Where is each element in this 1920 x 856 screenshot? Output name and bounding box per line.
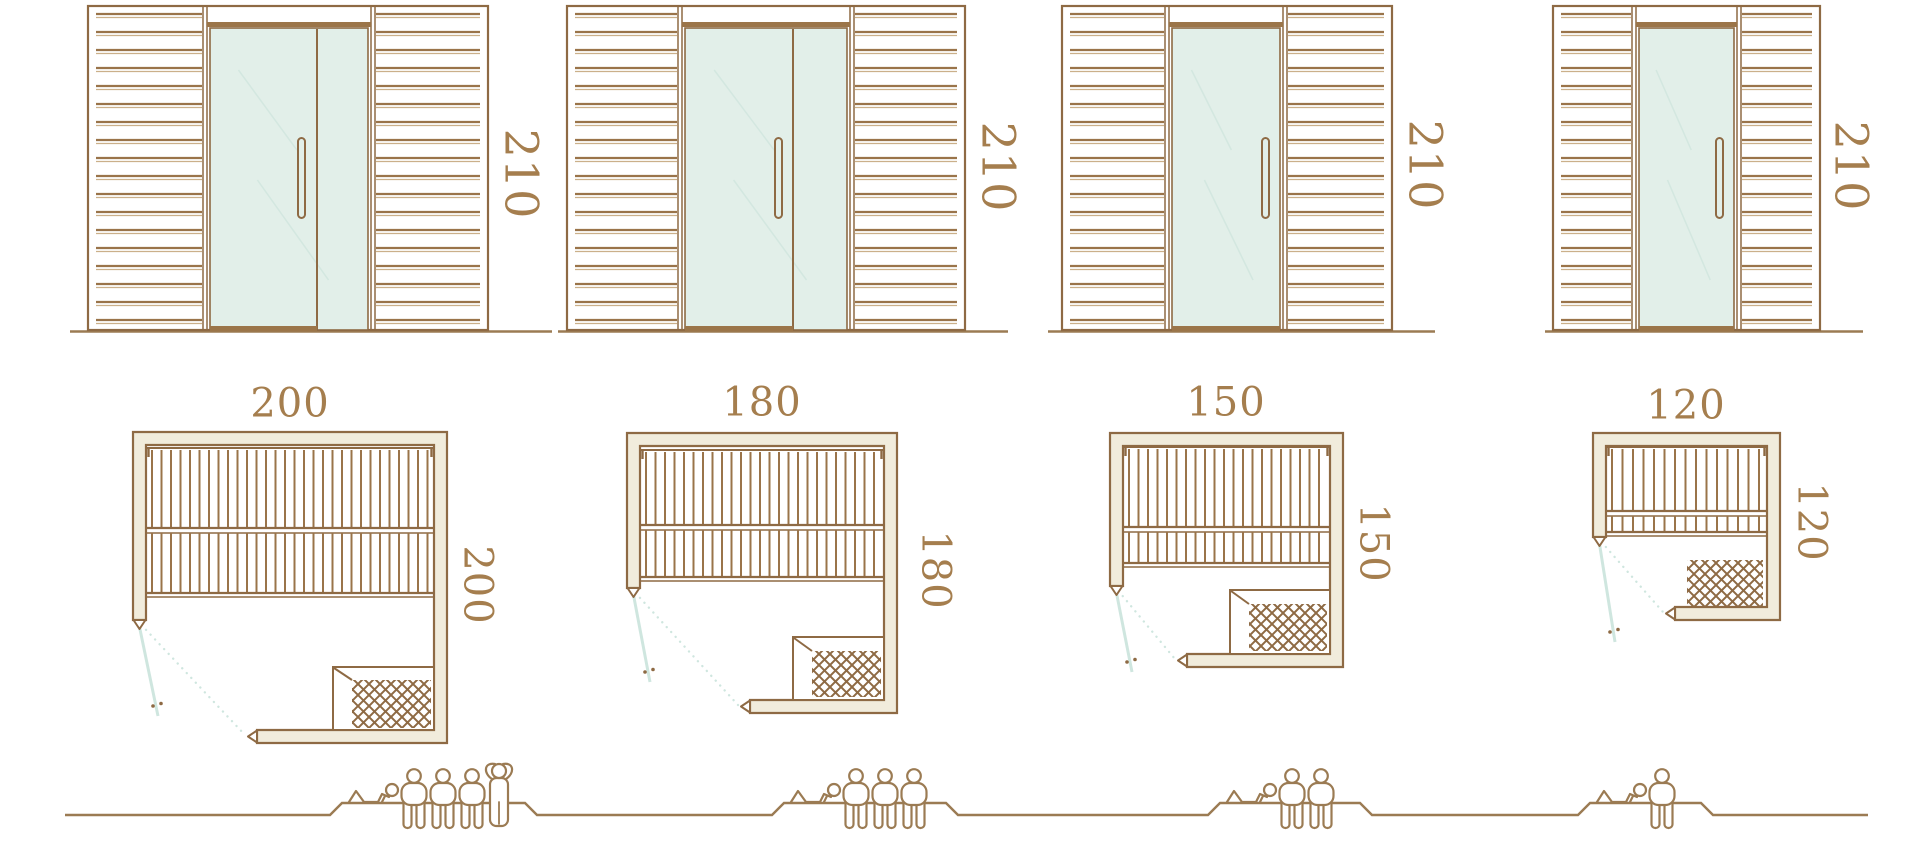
height-dimension-label: 210: [494, 129, 548, 220]
wood-slat-panel: [96, 14, 202, 324]
elevation-front-view: [1048, 6, 1435, 332]
elevation-front-view: [70, 6, 552, 332]
door-header-bar: [682, 22, 850, 27]
unit-sauna-120: 210120120: [1545, 6, 1878, 642]
door-hinge-marker: [1111, 586, 1123, 595]
wood-slat-panel: [575, 14, 677, 324]
door-sill: [1172, 326, 1280, 332]
door-jamb-marker: [1178, 655, 1187, 667]
door-leaf-open: [1600, 544, 1616, 642]
wood-slat-panel: [855, 14, 957, 324]
door-jamb-marker: [248, 731, 257, 743]
door-handle: [298, 138, 305, 218]
door-handle-dot: [1616, 628, 1620, 632]
wood-slat-panel: [1742, 14, 1812, 324]
person-seated-icon: [873, 769, 898, 828]
capacity-icons-200: [349, 764, 512, 828]
diagram-svg: 210200200210180180210150150210120120: [0, 0, 1920, 856]
door-handle-dot: [1608, 630, 1612, 634]
capacity-icons-120: [1597, 769, 1675, 828]
person-seated-icon: [402, 769, 427, 828]
door-swing-arc: [636, 593, 739, 705]
door-handle-dot: [643, 670, 647, 674]
person-seated-icon: [460, 769, 485, 828]
floor-plan-top-view: [1110, 433, 1370, 672]
door-handle-dot: [151, 704, 155, 708]
door-handle-dot: [651, 668, 655, 672]
capacity-icons-180: [791, 769, 927, 828]
unit-sauna-200: 210200200: [70, 6, 552, 743]
glass-door-swing: [1117, 591, 1176, 672]
glass-door-panel: [210, 28, 368, 330]
glass-door-swing: [140, 625, 246, 735]
door-hinge-marker: [1594, 537, 1606, 546]
floor-plan-top-view: [627, 433, 922, 713]
heater: [1635, 559, 1808, 609]
depth-dimension-label: 120: [1788, 482, 1834, 561]
heater: [298, 667, 484, 731]
bench-slats: [1124, 447, 1329, 567]
depth-dimension-label: 200: [454, 545, 500, 624]
door-jamb-marker: [1666, 608, 1675, 620]
door-handle: [1716, 138, 1723, 218]
person-lying-icon: [1227, 784, 1276, 802]
person-seated-icon: [1650, 769, 1675, 828]
door-swing-arc: [142, 625, 246, 735]
person-lying-icon: [791, 784, 840, 802]
door-leaf-open: [1117, 593, 1133, 672]
person-seated-icon: [1280, 769, 1305, 828]
floor-plan-top-view: [133, 432, 484, 743]
glass-door-panel: [685, 28, 847, 330]
depth-dimension-label: 150: [1350, 503, 1396, 582]
door-handle-dot: [159, 702, 163, 706]
bench-slats: [641, 450, 883, 581]
person-seated-icon: [1309, 769, 1334, 828]
person-seated-icon: [844, 769, 869, 828]
elevation-front-view: [1545, 6, 1863, 332]
door-sill: [685, 326, 793, 332]
unit-sauna-180: 210180180: [558, 6, 1025, 713]
door-header-bar: [207, 22, 371, 27]
door-header-bar: [1636, 22, 1737, 27]
width-dimension-label: 150: [1186, 380, 1265, 426]
height-dimension-label: 210: [1398, 120, 1452, 211]
width-dimension-label: 180: [722, 380, 801, 426]
depth-dimension-label: 180: [912, 530, 958, 609]
door-hinge-marker: [628, 588, 640, 597]
person-lying-icon: [1597, 784, 1646, 802]
person-seated-icon: [431, 769, 456, 828]
door-leaf-open: [634, 595, 651, 682]
door-handle-dot: [1133, 658, 1137, 662]
door-swing-arc: [1602, 542, 1664, 612]
ground-profile-line: [65, 803, 1868, 815]
door-hinge-marker: [134, 620, 146, 629]
door-handle: [1262, 138, 1269, 218]
door-sill: [210, 326, 317, 332]
capacity-icons-150: [1227, 769, 1334, 828]
elevation-front-view: [558, 6, 1008, 332]
door-handle: [775, 138, 782, 218]
wood-slat-panel: [1070, 14, 1164, 324]
person-seated-icon: [902, 769, 927, 828]
glass-door-swing: [634, 593, 739, 705]
floor-plan-top-view: [1593, 433, 1808, 642]
door-jamb-marker: [741, 701, 750, 713]
width-dimension-label: 200: [250, 381, 329, 427]
door-sill: [1639, 326, 1734, 332]
sauna-sizes-diagram: 210200200210180180210150150210120120: [0, 0, 1920, 856]
wood-slat-panel: [1288, 14, 1384, 324]
person-lying-icon: [349, 784, 398, 802]
height-dimension-label: 210: [971, 122, 1025, 213]
bench-slats: [147, 448, 433, 597]
height-dimension-label: 210: [1824, 121, 1878, 212]
door-handle-dot: [1125, 660, 1129, 664]
glass-door-swing: [1600, 542, 1664, 642]
door-header-bar: [1169, 22, 1283, 27]
wood-slat-panel: [1561, 14, 1631, 324]
person-standing-icon: [486, 764, 512, 826]
heater-lattice: [1635, 559, 1808, 609]
width-dimension-label: 120: [1646, 383, 1725, 429]
unit-sauna-150: 210150150: [1048, 6, 1452, 672]
bench-slats: [1607, 447, 1766, 536]
wood-slat-panel: [376, 14, 480, 324]
